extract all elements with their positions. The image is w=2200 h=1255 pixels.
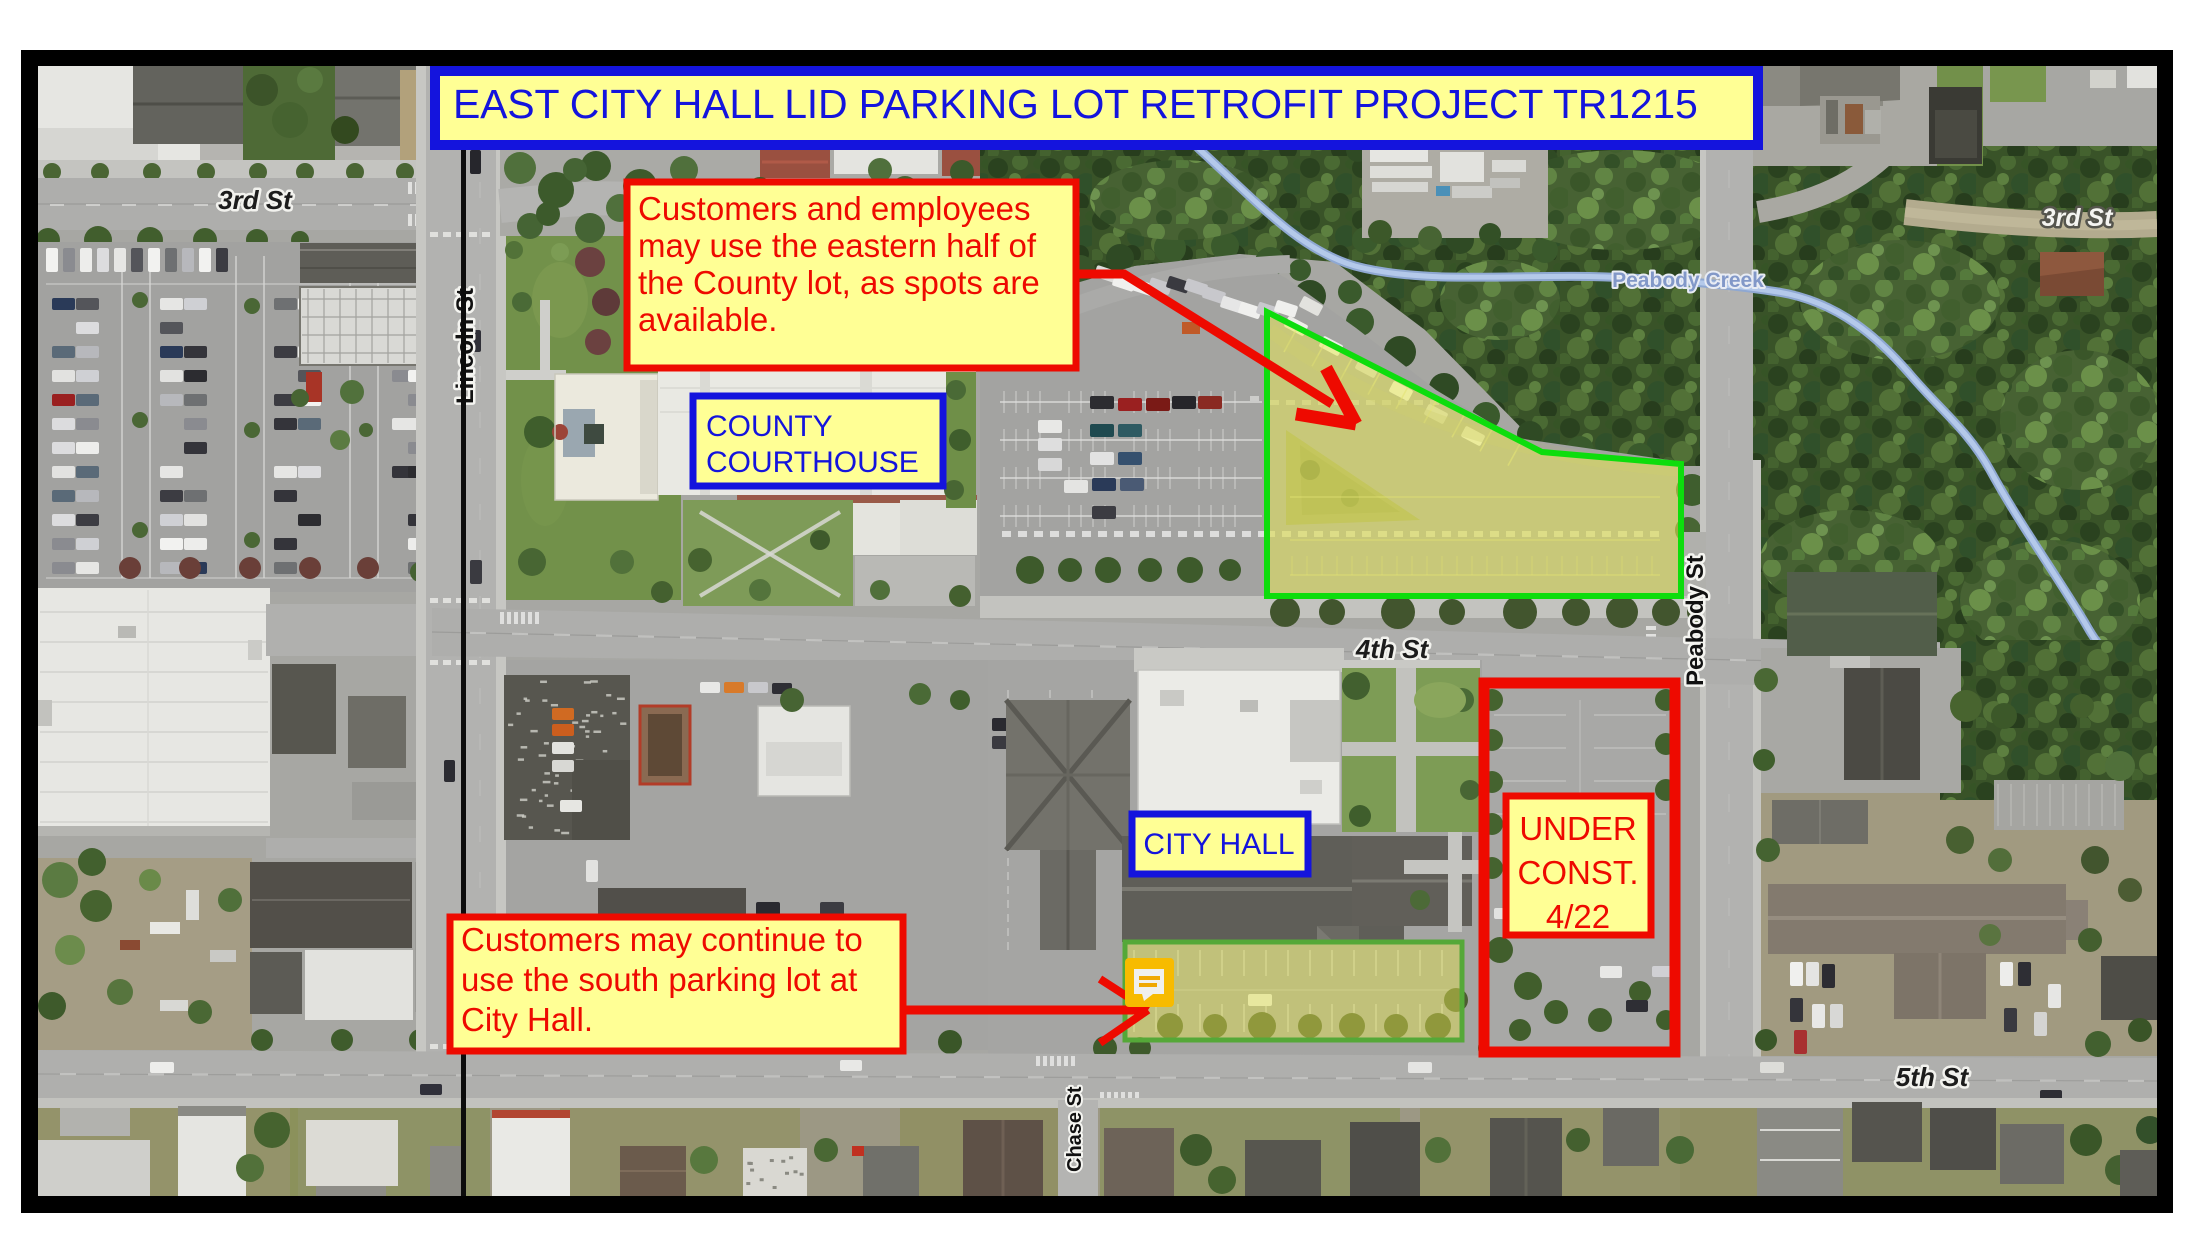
- svg-text:City Hall.: City Hall.: [461, 1001, 593, 1038]
- svg-text:use the south parking lot at: use the south parking lot at: [461, 961, 857, 998]
- svg-text:Customers may continue to: Customers may continue to: [461, 921, 863, 958]
- svg-text:Customers and employees: Customers and employees: [638, 190, 1031, 227]
- svg-text:UNDER: UNDER: [1519, 810, 1636, 847]
- svg-text:the County lot, as spots are: the County lot, as spots are: [638, 264, 1040, 301]
- svg-text:Chase St: Chase St: [1064, 1086, 1086, 1172]
- svg-text:Peabody Creek: Peabody Creek: [1612, 269, 1764, 292]
- svg-text:3rd St: 3rd St: [218, 185, 293, 215]
- svg-text:4/22: 4/22: [1546, 898, 1610, 935]
- svg-text:EAST CITY HALL LID PARKING LOT: EAST CITY HALL LID PARKING LOT RETROFIT …: [453, 81, 1698, 127]
- svg-text:3rd St: 3rd St: [2042, 204, 2115, 232]
- svg-text:COUNTY: COUNTY: [706, 410, 833, 443]
- svg-text:4th St: 4th St: [1355, 634, 1430, 664]
- svg-text:may use the eastern half of: may use the eastern half of: [638, 227, 1037, 264]
- svg-text:COURTHOUSE: COURTHOUSE: [706, 446, 919, 479]
- svg-text:5th St: 5th St: [1896, 1062, 1970, 1092]
- svg-text:CITY HALL: CITY HALL: [1143, 828, 1294, 861]
- svg-text:Peabody St: Peabody St: [1682, 555, 1709, 686]
- svg-text:available.: available.: [638, 301, 777, 338]
- svg-text:CONST.: CONST.: [1517, 854, 1638, 891]
